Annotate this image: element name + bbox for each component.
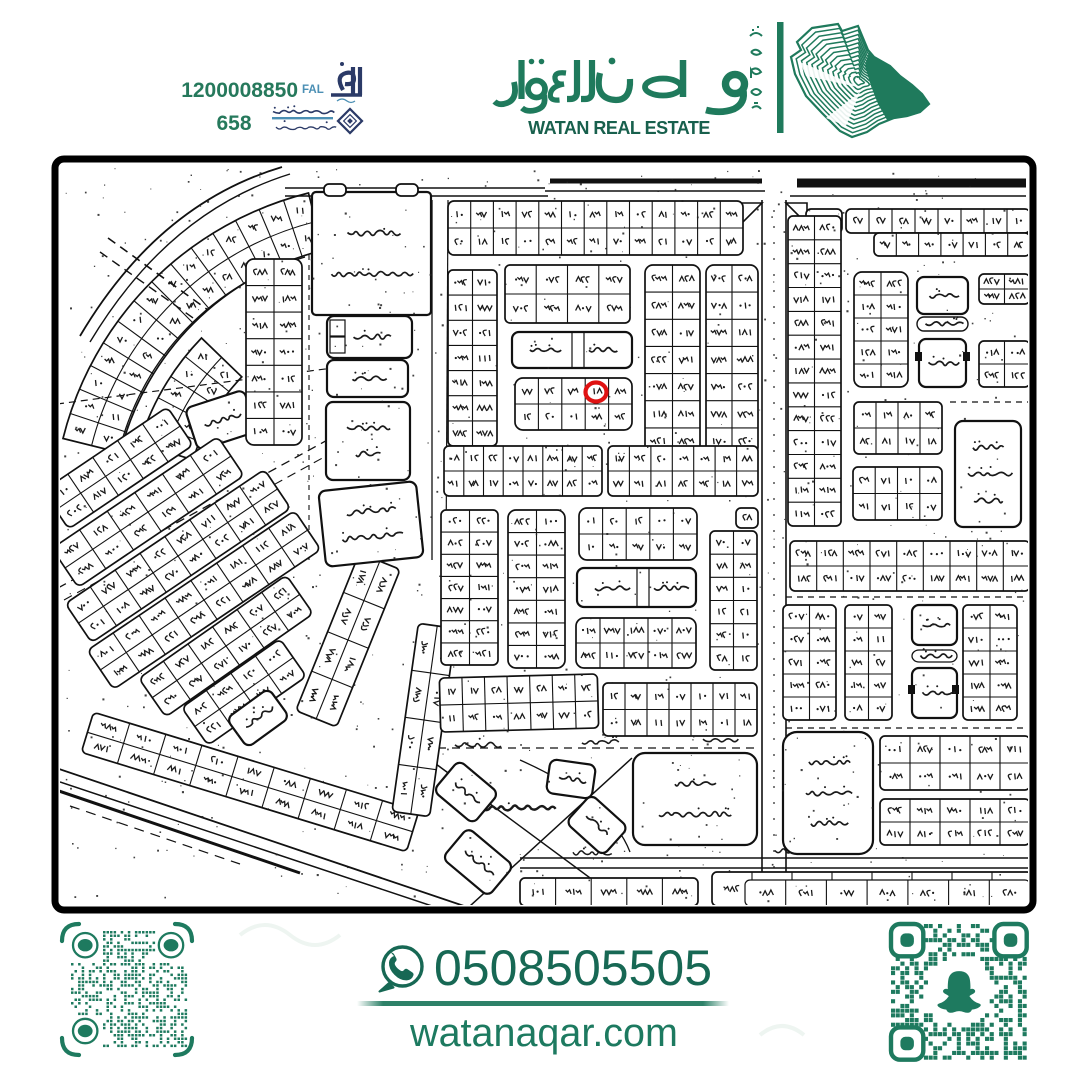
svg-text:658: 658: [216, 112, 251, 135]
svg-text:watanaqar.com: watanaqar.com: [409, 1011, 678, 1055]
svg-text:FAL: FAL: [302, 84, 324, 96]
svg-text:1200008850: 1200008850: [181, 79, 298, 102]
svg-text:0508505505: 0508505505: [434, 940, 712, 996]
svg-text:WATAN REAL ESTATE: WATAN REAL ESTATE: [528, 118, 710, 138]
